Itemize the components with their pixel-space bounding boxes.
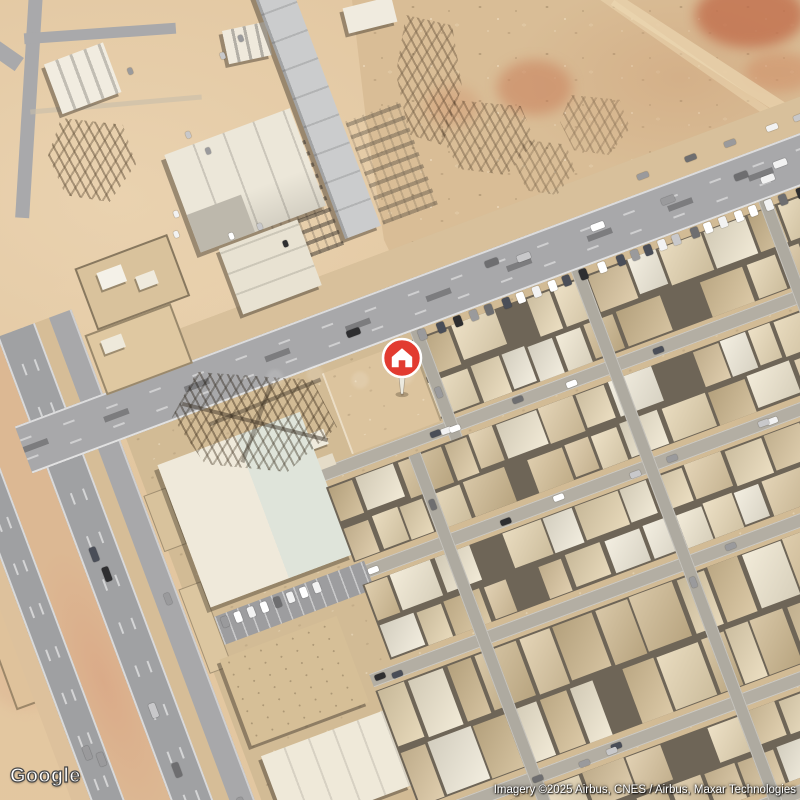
car xyxy=(516,252,532,263)
building xyxy=(508,701,556,765)
car xyxy=(237,796,247,800)
building xyxy=(469,425,505,468)
highway-median xyxy=(0,337,313,800)
building xyxy=(570,680,613,744)
building xyxy=(574,490,630,539)
building xyxy=(744,701,787,746)
building xyxy=(427,725,490,794)
building xyxy=(642,514,684,558)
car xyxy=(452,315,463,328)
car xyxy=(435,321,446,334)
car xyxy=(163,592,173,605)
car xyxy=(795,186,800,199)
car xyxy=(82,745,93,761)
building xyxy=(656,642,717,710)
industrial-building xyxy=(44,42,122,114)
car xyxy=(561,274,572,287)
car xyxy=(767,416,779,425)
car xyxy=(259,601,269,614)
car xyxy=(611,741,623,750)
watermark xyxy=(255,350,455,405)
car xyxy=(147,702,159,719)
building xyxy=(428,368,480,417)
soil-patch xyxy=(425,86,480,126)
building xyxy=(424,484,472,532)
car xyxy=(793,112,800,122)
pylon-shadow-arm xyxy=(209,378,322,427)
car xyxy=(748,204,759,217)
connector-street xyxy=(571,267,800,800)
car xyxy=(578,758,590,767)
block-row xyxy=(310,542,800,800)
building xyxy=(604,528,651,573)
building xyxy=(445,437,480,480)
building xyxy=(496,410,548,458)
soil-patch xyxy=(288,596,348,716)
pylon-shadow xyxy=(172,372,337,472)
industrial-building xyxy=(343,0,398,34)
pylon-shadow xyxy=(396,15,462,145)
car xyxy=(643,243,654,256)
market-building xyxy=(157,412,353,608)
car xyxy=(757,418,769,427)
shed xyxy=(100,333,126,354)
industrial-building xyxy=(222,22,272,64)
car xyxy=(237,35,244,43)
shed xyxy=(303,429,329,452)
car xyxy=(773,158,789,169)
map-canvas[interactable]: Google Imagery ©2025 Airbus, CNES / Airb… xyxy=(0,0,800,800)
building xyxy=(761,466,800,516)
car xyxy=(89,546,101,563)
car xyxy=(733,170,749,181)
car xyxy=(172,210,179,218)
car xyxy=(96,752,107,768)
block-row xyxy=(410,106,800,419)
car xyxy=(184,131,191,139)
car xyxy=(127,67,134,75)
building xyxy=(703,217,758,268)
building xyxy=(538,395,586,443)
building xyxy=(556,327,593,373)
building xyxy=(661,392,717,441)
service-road xyxy=(49,309,387,800)
terrain-layer xyxy=(0,0,800,800)
car xyxy=(346,327,362,338)
car xyxy=(501,297,512,310)
parking-lot xyxy=(214,561,374,645)
substation-equipment xyxy=(246,137,344,266)
car xyxy=(434,386,443,398)
car xyxy=(204,147,211,155)
side-street xyxy=(24,23,176,45)
building xyxy=(543,508,585,553)
building xyxy=(649,468,694,513)
residential-street xyxy=(369,623,800,800)
residential-street xyxy=(356,288,800,581)
industrial-building xyxy=(219,220,322,315)
building xyxy=(620,480,658,522)
walled-yard xyxy=(84,303,193,395)
car xyxy=(531,774,543,783)
walled-compound xyxy=(0,540,88,711)
building xyxy=(399,498,434,540)
overlay-decor-layer xyxy=(0,0,800,800)
building xyxy=(782,523,800,594)
road-stub xyxy=(0,41,24,71)
building xyxy=(787,591,800,663)
car xyxy=(220,615,230,628)
building xyxy=(778,243,800,288)
building xyxy=(443,588,492,637)
building xyxy=(608,366,664,416)
building xyxy=(725,438,775,486)
strip-building xyxy=(178,581,232,674)
location-marker[interactable] xyxy=(380,336,424,398)
building xyxy=(746,360,800,408)
car xyxy=(391,670,403,679)
building xyxy=(764,423,800,470)
building xyxy=(389,560,443,610)
car xyxy=(606,746,618,755)
car xyxy=(703,221,714,234)
building xyxy=(595,599,647,665)
building xyxy=(538,558,573,599)
building xyxy=(398,447,454,498)
building xyxy=(619,409,669,457)
car xyxy=(484,257,500,268)
connector-street xyxy=(408,452,609,800)
car xyxy=(734,209,745,222)
industrial-building xyxy=(164,108,326,252)
marker-graphic xyxy=(380,336,424,398)
car xyxy=(764,198,775,211)
pylon-shadow xyxy=(440,100,535,175)
car xyxy=(629,248,640,261)
industrial-building xyxy=(187,195,255,253)
car xyxy=(246,606,256,619)
car xyxy=(171,762,183,779)
highway-carriageway xyxy=(0,323,350,800)
building xyxy=(434,545,482,592)
car xyxy=(483,303,494,316)
block-row xyxy=(375,402,800,800)
building xyxy=(527,337,566,383)
car xyxy=(374,671,386,680)
dirt-path xyxy=(30,95,202,115)
building xyxy=(725,621,768,684)
car xyxy=(725,542,737,551)
shed xyxy=(315,453,336,471)
building xyxy=(734,483,771,524)
block-row xyxy=(362,305,800,660)
building xyxy=(447,658,491,722)
soil-patch xyxy=(745,52,800,92)
building xyxy=(408,668,463,737)
building xyxy=(684,451,733,499)
building xyxy=(462,466,517,517)
residential-ground xyxy=(97,20,800,800)
car xyxy=(282,239,289,247)
car xyxy=(657,238,668,251)
soil-patch xyxy=(497,60,572,115)
building xyxy=(502,346,537,389)
road-shoulder xyxy=(97,20,800,393)
car xyxy=(285,591,295,604)
building xyxy=(587,262,638,311)
building xyxy=(519,628,570,694)
building xyxy=(401,744,445,800)
car xyxy=(547,279,558,292)
building xyxy=(708,716,754,763)
pylon-shadow-arm xyxy=(241,382,274,463)
pylon-shadow xyxy=(560,95,630,155)
car xyxy=(367,565,379,574)
soil-patch xyxy=(0,430,32,542)
building xyxy=(776,738,800,782)
building xyxy=(707,556,758,622)
car xyxy=(765,123,778,133)
building xyxy=(365,577,400,620)
car xyxy=(173,231,180,239)
street-grid-layer xyxy=(0,0,800,800)
building xyxy=(539,690,586,754)
main-avenue xyxy=(15,52,800,474)
white-building xyxy=(261,711,411,800)
building xyxy=(693,343,731,387)
building xyxy=(629,581,692,651)
building xyxy=(473,714,524,779)
google-logo[interactable]: Google xyxy=(10,765,81,788)
building xyxy=(553,277,600,326)
pylon-shadow-arm xyxy=(182,402,329,442)
building xyxy=(474,641,535,710)
building xyxy=(502,519,553,568)
soil-patch xyxy=(695,0,800,48)
building xyxy=(329,480,365,521)
desert-track xyxy=(595,0,780,123)
building xyxy=(615,295,673,347)
car xyxy=(449,424,461,433)
car xyxy=(660,195,676,206)
shed xyxy=(4,580,26,596)
car xyxy=(227,232,234,240)
car xyxy=(717,216,728,229)
road-gap xyxy=(35,318,364,800)
building xyxy=(565,542,612,587)
building xyxy=(416,603,453,645)
car xyxy=(428,498,437,510)
side-street xyxy=(15,0,43,218)
car xyxy=(636,171,649,181)
car xyxy=(578,268,589,281)
building xyxy=(778,197,800,241)
desert-terrain xyxy=(0,0,800,310)
car xyxy=(666,453,678,462)
substation-building xyxy=(240,0,381,239)
building xyxy=(748,206,788,252)
car xyxy=(500,517,512,526)
imagery-attribution: Imagery ©2025 Airbus, CNES / Airbus, Max… xyxy=(494,784,796,796)
shed xyxy=(96,264,127,290)
building xyxy=(583,314,625,359)
car xyxy=(690,226,701,239)
car xyxy=(101,566,113,583)
walled-yard xyxy=(74,234,190,330)
residential-street xyxy=(304,524,800,800)
car xyxy=(430,429,442,438)
car xyxy=(777,193,788,206)
car xyxy=(591,221,607,232)
building xyxy=(575,385,615,428)
car xyxy=(219,52,226,60)
building xyxy=(378,682,425,747)
building xyxy=(527,447,575,495)
desert-track xyxy=(611,0,800,130)
building xyxy=(627,249,669,294)
building xyxy=(451,309,507,359)
building xyxy=(371,506,409,549)
car xyxy=(299,586,309,599)
shed xyxy=(135,270,159,290)
building xyxy=(356,463,405,509)
car xyxy=(671,233,682,246)
car xyxy=(512,395,524,404)
car xyxy=(440,427,452,436)
car xyxy=(760,173,776,184)
car xyxy=(553,493,565,502)
car xyxy=(596,261,607,274)
building xyxy=(623,657,675,724)
hwy-west-shoulder xyxy=(0,363,244,800)
building xyxy=(343,519,379,560)
building xyxy=(564,436,599,477)
car xyxy=(233,611,243,624)
strip-building xyxy=(143,488,186,553)
building xyxy=(746,254,787,299)
car xyxy=(256,223,263,231)
building xyxy=(773,307,800,357)
building xyxy=(749,608,800,675)
highway-carriageway xyxy=(0,352,272,800)
car xyxy=(468,309,479,322)
car xyxy=(629,470,641,479)
car xyxy=(684,153,697,163)
building xyxy=(719,332,758,377)
building xyxy=(379,612,424,657)
car xyxy=(515,291,526,304)
building xyxy=(677,570,724,633)
car xyxy=(531,285,542,298)
building xyxy=(676,506,714,549)
car xyxy=(312,581,322,594)
building xyxy=(778,692,800,735)
car xyxy=(272,596,282,609)
building xyxy=(742,541,800,608)
building xyxy=(590,427,628,470)
pylon-shadow xyxy=(515,140,575,195)
car xyxy=(723,138,736,148)
building xyxy=(708,378,758,426)
soil-patch xyxy=(76,583,138,645)
substation-equipment xyxy=(345,101,438,224)
soil-patch xyxy=(0,648,60,710)
building xyxy=(794,347,800,393)
pylon-shadow xyxy=(48,118,136,202)
soil-patch xyxy=(598,212,653,242)
connector-street xyxy=(758,197,800,627)
big-box-building xyxy=(220,616,369,746)
building xyxy=(699,266,755,319)
building xyxy=(748,323,782,365)
building xyxy=(659,233,714,285)
building xyxy=(701,631,743,693)
car xyxy=(652,346,664,355)
car xyxy=(616,254,627,267)
residential-street xyxy=(369,385,800,687)
car xyxy=(689,576,698,588)
building xyxy=(527,291,563,336)
building xyxy=(702,492,744,538)
building xyxy=(470,355,513,403)
building xyxy=(484,579,518,619)
building xyxy=(552,612,612,680)
car xyxy=(565,379,577,388)
